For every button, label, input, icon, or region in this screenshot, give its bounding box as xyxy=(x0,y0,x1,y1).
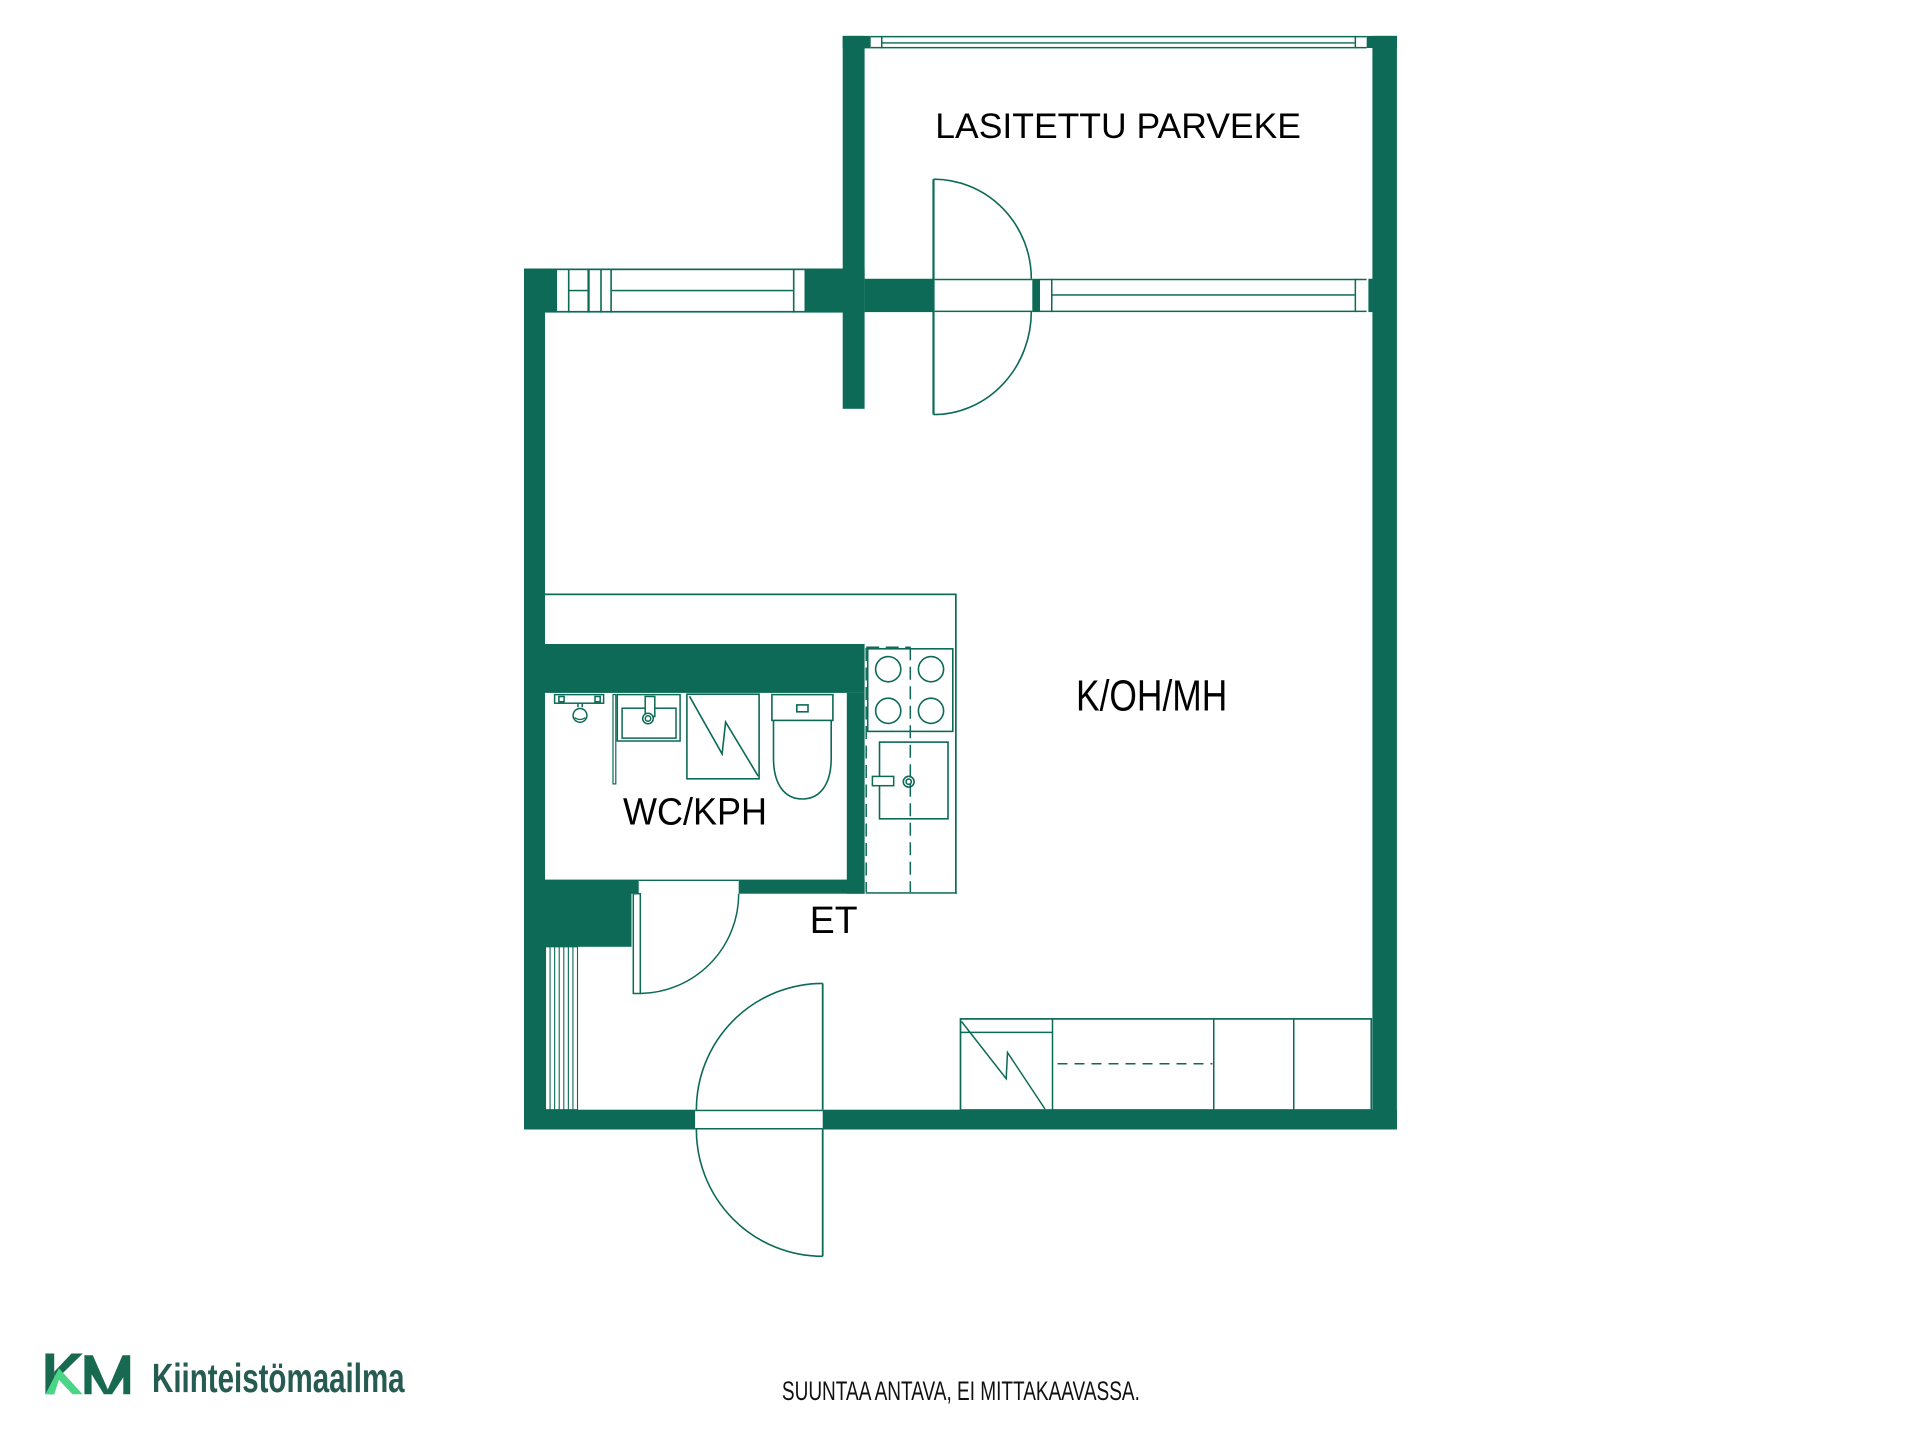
svg-text:LASITETTU PARVEKE: LASITETTU PARVEKE xyxy=(935,106,1301,146)
svg-text:WC/KPH: WC/KPH xyxy=(623,789,767,832)
svg-text:Kiinteistömaailma: Kiinteistömaailma xyxy=(152,1355,406,1401)
svg-text:K/OH/MH: K/OH/MH xyxy=(1076,672,1227,720)
svg-text:SUUNTAA ANTAVA, EI MITTAKAAVAS: SUUNTAA ANTAVA, EI MITTAKAAVASSA. xyxy=(782,1376,1140,1406)
svg-text:ET: ET xyxy=(810,899,858,941)
